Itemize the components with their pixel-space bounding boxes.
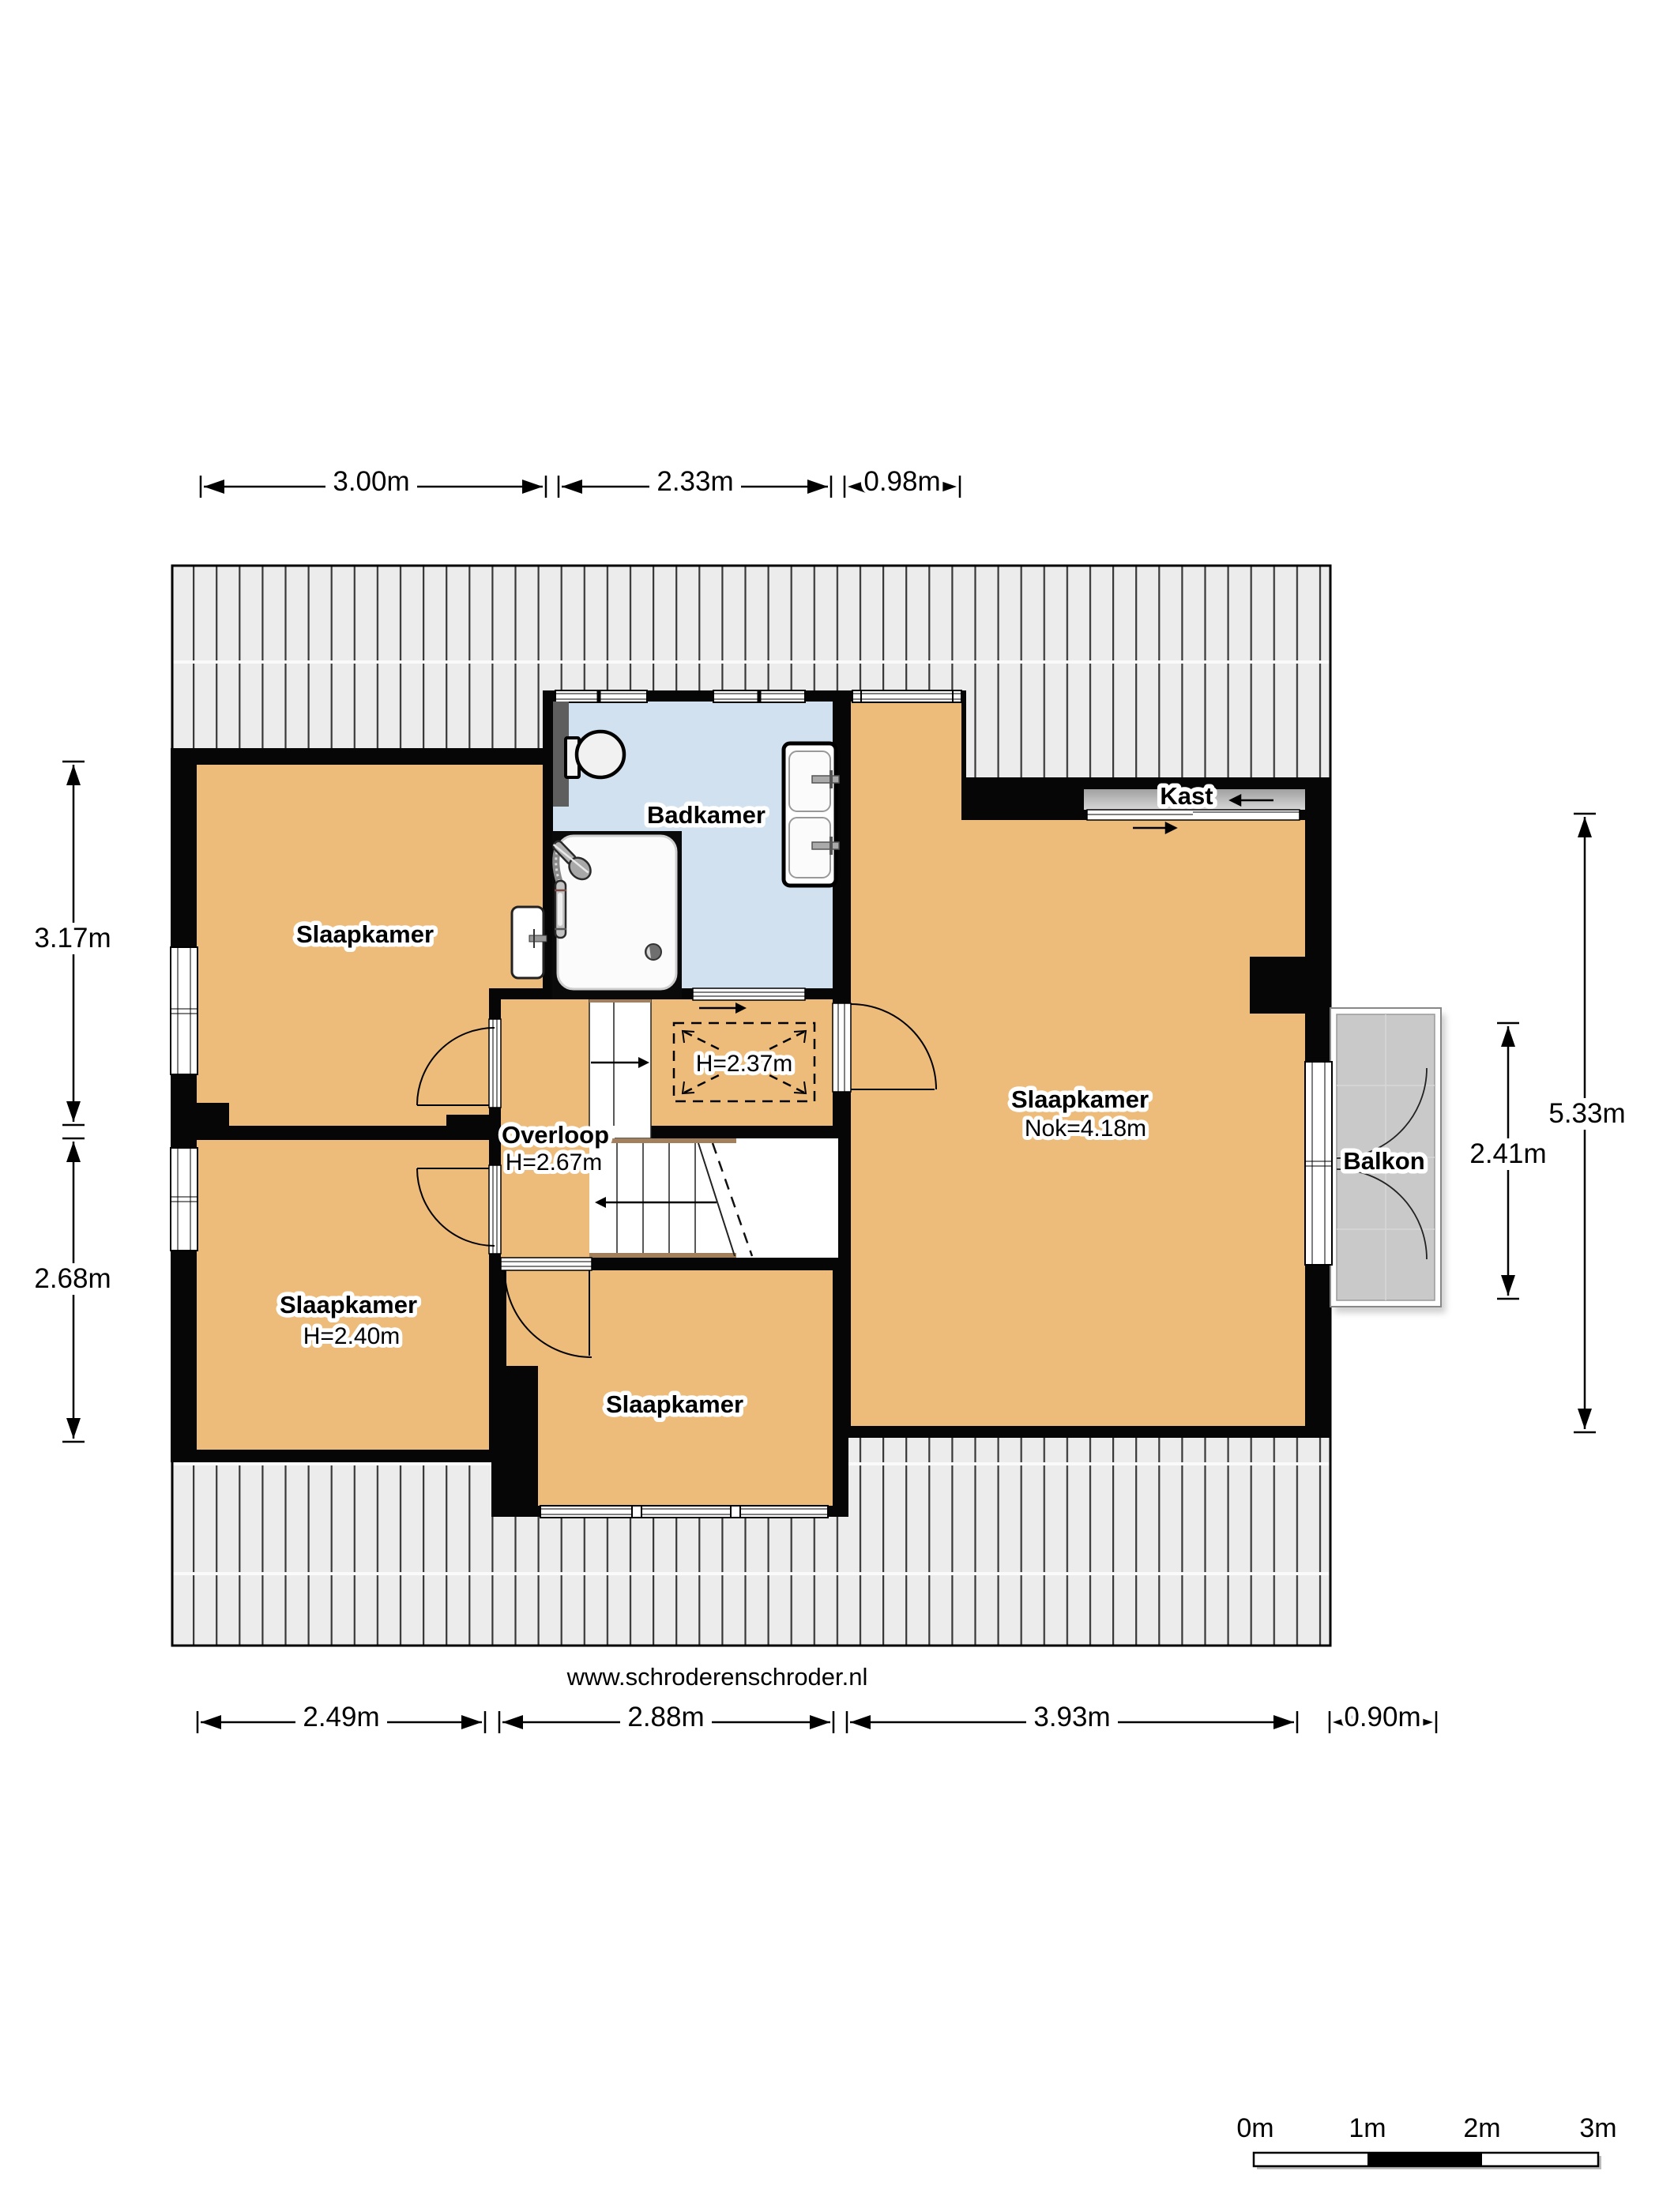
svg-text:H=2.37m: H=2.37m	[696, 1051, 793, 1077]
svg-text:Slaapkamer: Slaapkamer	[280, 1291, 417, 1319]
svg-text:2.88m: 2.88m	[627, 1702, 704, 1732]
svg-text:2.68m: 2.68m	[34, 1263, 111, 1294]
svg-text:0m: 0m	[1236, 2113, 1273, 2143]
svg-text:1m: 1m	[1349, 2113, 1386, 2143]
svg-text:2.33m: 2.33m	[656, 466, 733, 497]
svg-text:H=2.67m: H=2.67m	[506, 1149, 603, 1176]
svg-text:Badkamer: Badkamer	[647, 801, 766, 829]
svg-text:Slaapkamer: Slaapkamer	[1011, 1085, 1149, 1113]
svg-text:Overloop: Overloop	[502, 1121, 609, 1149]
svg-text:0.98m: 0.98m	[863, 466, 940, 497]
svg-text:2.41m: 2.41m	[1469, 1138, 1546, 1169]
svg-text:Balkon: Balkon	[1343, 1147, 1424, 1175]
svg-text:2.49m: 2.49m	[303, 1702, 379, 1732]
svg-text:Slaapkamer: Slaapkamer	[296, 920, 434, 948]
svg-text:3m: 3m	[1579, 2113, 1616, 2143]
svg-text:5.33m: 5.33m	[1548, 1098, 1625, 1129]
svg-text:3.17m: 3.17m	[34, 923, 111, 954]
svg-text:H=2.40m: H=2.40m	[303, 1323, 401, 1349]
svg-text:Nok=4.18m: Nok=4.18m	[1025, 1115, 1146, 1142]
svg-text:2m: 2m	[1463, 2113, 1500, 2143]
svg-text:www.schroderenschroder.nl: www.schroderenschroder.nl	[566, 1663, 868, 1691]
svg-text:0.90m: 0.90m	[1344, 1702, 1420, 1732]
svg-text:Slaapkamer: Slaapkamer	[606, 1390, 743, 1418]
svg-text:Kast: Kast	[1160, 782, 1213, 810]
svg-text:3.93m: 3.93m	[1033, 1702, 1110, 1732]
svg-text:3.00m: 3.00m	[333, 466, 409, 497]
